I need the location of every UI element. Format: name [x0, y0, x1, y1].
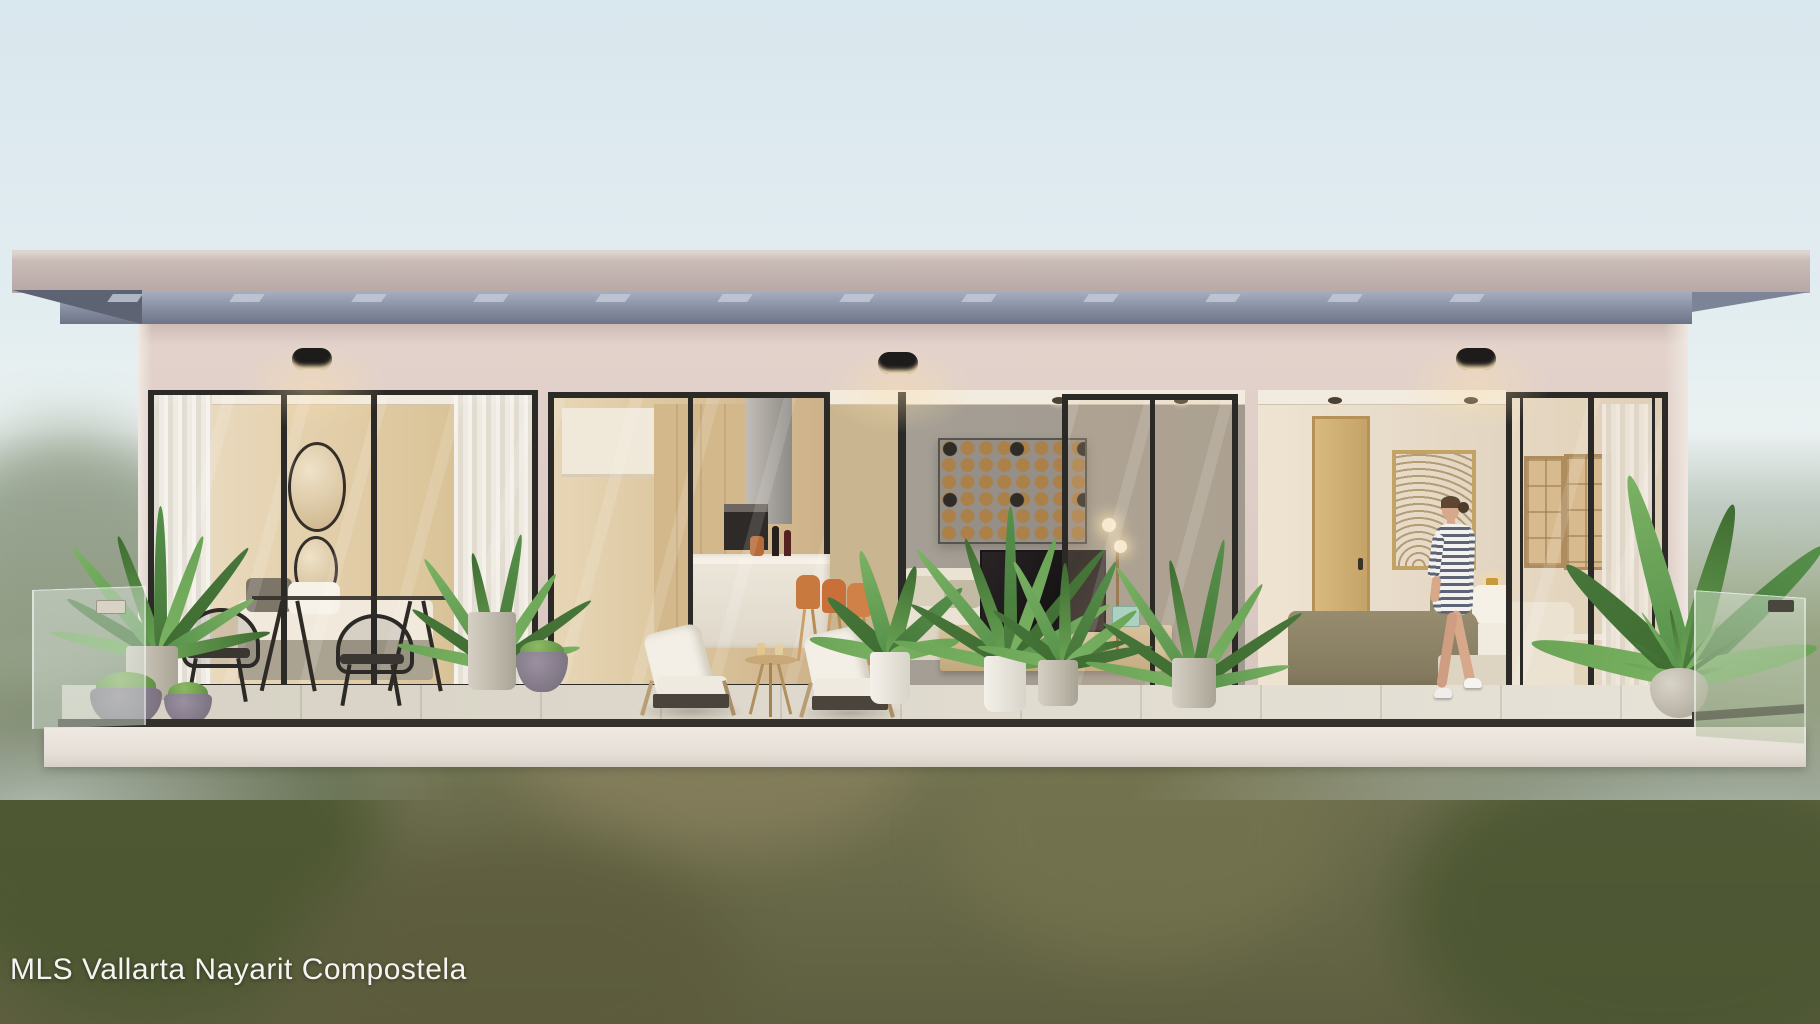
woman-hair-bun — [1458, 502, 1469, 513]
white-planter — [870, 652, 910, 704]
stone-planter — [1038, 660, 1078, 706]
roof-underside-right — [1692, 292, 1810, 312]
patio-side-table — [745, 655, 797, 717]
glass-railing-right — [1694, 590, 1806, 744]
pergola-beam — [1205, 294, 1241, 302]
fiddle-leaf-plant — [850, 520, 930, 660]
balcony-slab — [44, 727, 1806, 767]
rendering-canvas: MLS Vallarta Nayarit Compostela — [0, 0, 1820, 1024]
pergola-underside — [60, 292, 1692, 324]
pergola-beam — [1327, 294, 1363, 302]
pergola-beam — [1449, 294, 1485, 302]
drink-glass — [775, 644, 783, 655]
wicker-chair — [330, 614, 414, 708]
wall-sconce-light — [292, 348, 332, 370]
pergola-beam — [351, 294, 387, 302]
pergola-beam — [107, 294, 143, 302]
palm-plant — [1130, 470, 1260, 690]
pergola-beam — [839, 294, 875, 302]
wine-bottle — [784, 530, 791, 556]
railing-bracket — [96, 600, 126, 614]
railing-bracket — [1768, 600, 1794, 612]
stone-planter — [1172, 658, 1216, 708]
watermark-text: MLS Vallarta Nayarit Compostela — [10, 953, 467, 987]
woman-figure — [1424, 494, 1494, 706]
pergola-beam — [961, 294, 997, 302]
round-mirror — [288, 442, 346, 532]
wine-bottle — [772, 526, 779, 556]
door-handle — [1358, 558, 1363, 570]
window-frame-bar — [1520, 398, 1523, 692]
woman-sneaker — [1464, 678, 1482, 688]
pergola-beam — [473, 294, 509, 302]
recessed-spotlight — [1328, 397, 1342, 404]
drink-glass — [757, 643, 765, 655]
decor-vase — [750, 536, 764, 556]
woman-leg-back — [1436, 612, 1458, 689]
palm-plant — [1010, 500, 1120, 670]
pergola-beam — [229, 294, 265, 302]
pergola-beam — [717, 294, 753, 302]
stone-planter — [468, 612, 516, 690]
woman-sneaker — [1434, 688, 1452, 698]
roof-slab — [12, 250, 1810, 293]
glass-railing-left — [32, 586, 146, 729]
upper-cabinets — [562, 408, 654, 477]
wall-sconce-light — [878, 352, 918, 374]
lounge-chair — [643, 628, 735, 718]
wall-sconce-light — [1456, 348, 1496, 370]
pergola-beam — [595, 294, 631, 302]
pergola-beam — [1083, 294, 1119, 302]
